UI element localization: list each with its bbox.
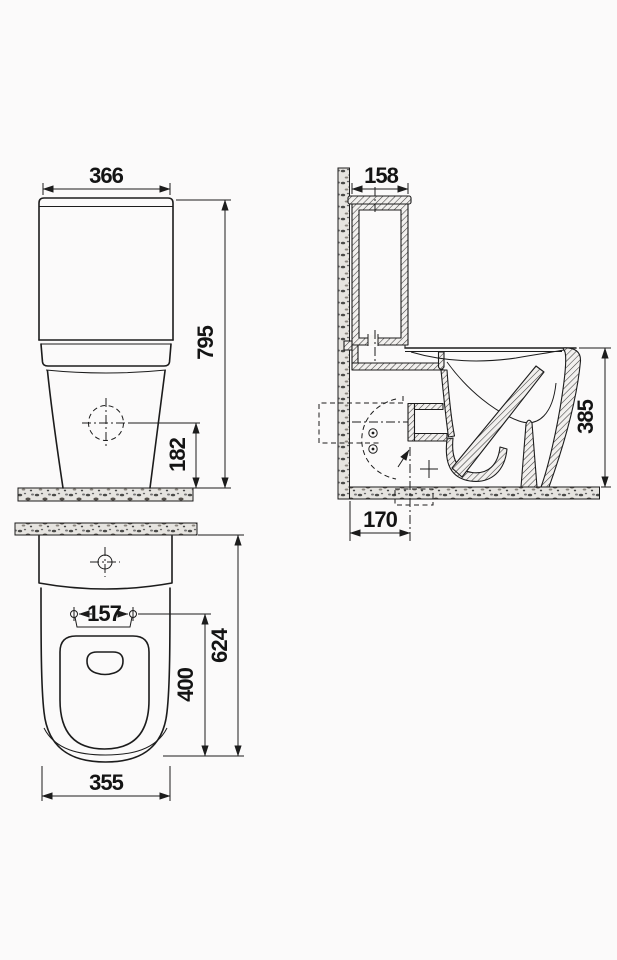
floor-hatch-front (18, 488, 193, 501)
bowl-back-band (352, 345, 358, 363)
supply-pipe-dashed-curve (362, 399, 396, 479)
side-section-view: 158 385 170 (319, 163, 611, 541)
cistern-fixing-tab (344, 341, 352, 350)
front-view: 366 795 182 (18, 163, 231, 501)
bowl-height-label: 385 (573, 399, 598, 433)
front-width-label: 366 (89, 163, 123, 188)
plan-view: 157 400 624 355 (15, 523, 244, 801)
total-depth-label: 624 (207, 627, 232, 662)
outlet-stub-top (415, 404, 444, 410)
flush-valve-gap (368, 335, 378, 346)
outlet-offset-label: 170 (363, 507, 397, 532)
bowl-shelf-band (352, 363, 443, 370)
hole-spacing-label: 157 (87, 601, 121, 626)
trap-center-cross (420, 460, 438, 478)
outlet-stub-cap (408, 404, 415, 442)
dimension-cistern-depth: 158 (352, 163, 408, 194)
floor-hatch-side (350, 487, 600, 499)
rim-lip-section (439, 352, 445, 369)
seat-ring-outline (60, 636, 149, 749)
pedestal-left-edge (48, 371, 64, 488)
bowl-upper-band (41, 344, 171, 366)
cistern-walls-section (352, 204, 408, 345)
flush-inlet-outline (87, 652, 123, 675)
outlet-stub-bottom (415, 434, 448, 442)
pedestal-right-edge (150, 371, 165, 488)
wall-hatch-side (338, 168, 350, 499)
seat-depth-label: 400 (173, 667, 198, 701)
dimension-outlet-height: 182 (165, 423, 196, 488)
cistern-depth-label: 158 (364, 163, 398, 188)
bowl-band-lower-curve (46, 370, 166, 373)
technical-drawing-page: 366 795 182 (0, 0, 617, 960)
bowl-width-label: 355 (89, 770, 123, 795)
cistern-front-outline (39, 198, 173, 340)
dimension-hole-spacing: 157 (71, 601, 137, 627)
rear-support-column (521, 420, 537, 487)
supply-zone-dashed-box (319, 403, 403, 443)
front-height-label: 795 (193, 325, 218, 359)
dimension-bowl-width: 355 (42, 766, 170, 801)
outlet-leader-arrow (398, 450, 409, 467)
cistern-lid-section (348, 196, 411, 204)
cistern-plan-outline (39, 536, 172, 589)
dimension-outlet-offset: 170 (350, 501, 410, 541)
toilet-dimension-drawing: 366 795 182 (0, 0, 617, 960)
flush-button-crosshair (90, 547, 120, 577)
wall-hatch-plan (15, 523, 197, 535)
bowl-rim-inner-curve (44, 728, 167, 755)
outlet-height-label: 182 (165, 437, 190, 471)
dimension-front-width: 366 (43, 163, 170, 195)
